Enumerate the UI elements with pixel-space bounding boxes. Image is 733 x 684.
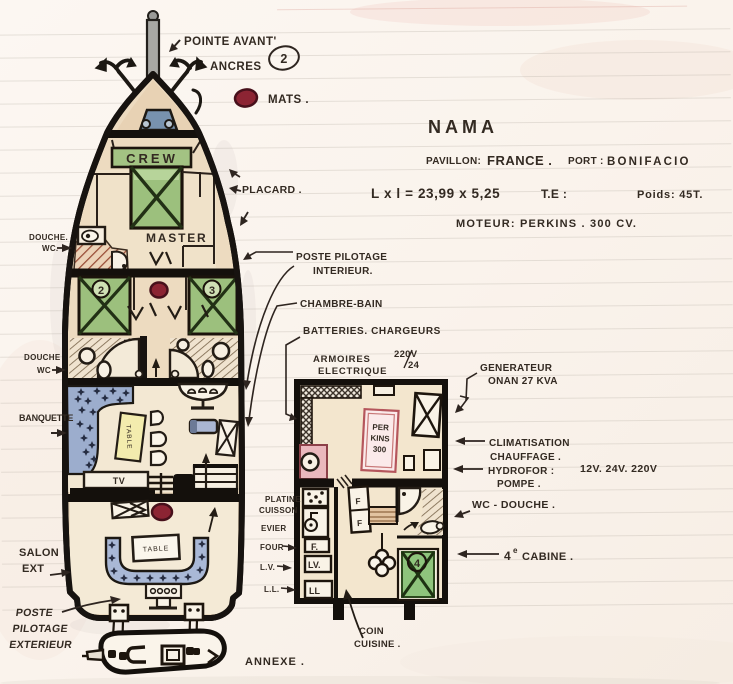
svg-text:4: 4: [414, 558, 421, 570]
svg-text:L x l = 23,99 x 5,25: L x l = 23,99 x 5,25: [371, 186, 500, 201]
svg-text:EXTERIEUR: EXTERIEUR: [9, 639, 74, 651]
svg-text:POSTE PILOTAGE: POSTE PILOTAGE: [296, 252, 387, 263]
svg-text:CHAMBRE-BAIN: CHAMBRE-BAIN: [300, 299, 382, 310]
svg-text:12V. 24V. 220V: 12V. 24V. 220V: [580, 463, 657, 475]
svg-text:FOUR: FOUR: [260, 543, 284, 552]
svg-text:L.L.: L.L.: [264, 585, 279, 594]
svg-text:TV: TV: [113, 476, 126, 486]
svg-text:PILOTAGE: PILOTAGE: [12, 623, 69, 635]
svg-text:HYDROFOR :: HYDROFOR :: [488, 466, 554, 477]
svg-text:NAMA: NAMA: [428, 117, 498, 137]
svg-text:PLACARD .: PLACARD .: [242, 184, 302, 196]
svg-text:F.: F.: [311, 542, 318, 552]
svg-text:BONIFACIO: BONIFACIO: [607, 156, 691, 168]
svg-text:MATS .: MATS .: [268, 94, 309, 106]
svg-text:LL: LL: [309, 586, 320, 596]
svg-text:POMPE .: POMPE .: [497, 479, 541, 490]
svg-text:BANQUETTE: BANQUETTE: [19, 413, 73, 423]
svg-text:ANNEXE .: ANNEXE .: [245, 656, 305, 668]
svg-text:BATTERIES. CHARGEURS: BATTERIES. CHARGEURS: [303, 326, 441, 337]
svg-text:DOUCHE.: DOUCHE.: [29, 233, 68, 242]
svg-text:POINTE AVANT': POINTE AVANT': [184, 36, 277, 48]
svg-text:F: F: [357, 518, 363, 528]
svg-text:POSTE: POSTE: [15, 607, 54, 619]
svg-text:TABLE: TABLE: [143, 545, 170, 553]
svg-text:WC.: WC.: [42, 244, 58, 253]
svg-text:Poids: 45T.: Poids: 45T.: [637, 189, 703, 201]
svg-text:KINS: KINS: [370, 434, 390, 444]
svg-text:MASTER: MASTER: [146, 231, 207, 245]
svg-text:CUISSON: CUISSON: [259, 506, 298, 515]
svg-text:CREW: CREW: [126, 151, 178, 166]
svg-text:EVIER: EVIER: [261, 524, 287, 533]
svg-text:PER: PER: [372, 423, 389, 433]
svg-text:F: F: [355, 496, 361, 506]
svg-text:24: 24: [408, 360, 420, 371]
svg-text:CHAUFFAGE .: CHAUFFAGE .: [490, 452, 561, 463]
svg-text:3: 3: [209, 285, 215, 297]
svg-text:CUISINE .: CUISINE .: [354, 639, 401, 650]
svg-text:MOTEUR: PERKINS . 300 CV.: MOTEUR: PERKINS . 300 CV.: [456, 218, 637, 230]
svg-text:2: 2: [280, 52, 287, 66]
svg-text:2: 2: [98, 285, 104, 297]
svg-text:TABLE: TABLE: [124, 424, 132, 449]
svg-text:T.E :: T.E :: [541, 187, 567, 201]
svg-text:WC: WC: [37, 366, 51, 375]
svg-text:ELECTRIQUE: ELECTRIQUE: [318, 366, 387, 377]
svg-text:WC - DOUCHE .: WC - DOUCHE .: [472, 499, 555, 511]
svg-text:ONAN 27 KVA: ONAN 27 KVA: [488, 376, 558, 387]
svg-text:L.V.: L.V.: [260, 563, 275, 572]
svg-text:CABINE .: CABINE .: [522, 551, 573, 563]
svg-text:300: 300: [373, 445, 387, 455]
svg-text:INTERIEUR.: INTERIEUR.: [313, 266, 373, 277]
svg-text:DOUCHE: DOUCHE: [24, 353, 61, 362]
svg-text:SALON: SALON: [19, 547, 59, 559]
svg-text:ARMOIRES: ARMOIRES: [313, 354, 371, 365]
svg-text:PLATINE: PLATINE: [265, 495, 301, 504]
svg-text:220V: 220V: [394, 349, 418, 360]
svg-text:CLIMATISATION: CLIMATISATION: [489, 438, 570, 449]
svg-text:PORT :: PORT :: [568, 156, 604, 167]
svg-text:FRANCE .: FRANCE .: [487, 153, 552, 168]
svg-text:e: e: [513, 546, 518, 555]
svg-text:GENERATEUR: GENERATEUR: [480, 363, 553, 374]
svg-text:4: 4: [504, 549, 511, 563]
svg-text:COIN: COIN: [359, 626, 384, 637]
svg-text:ANCRES: ANCRES: [210, 61, 262, 73]
svg-text:PAVILLON:: PAVILLON:: [426, 156, 481, 167]
svg-text:LV.: LV.: [308, 560, 321, 570]
svg-text:EXT: EXT: [22, 563, 44, 575]
